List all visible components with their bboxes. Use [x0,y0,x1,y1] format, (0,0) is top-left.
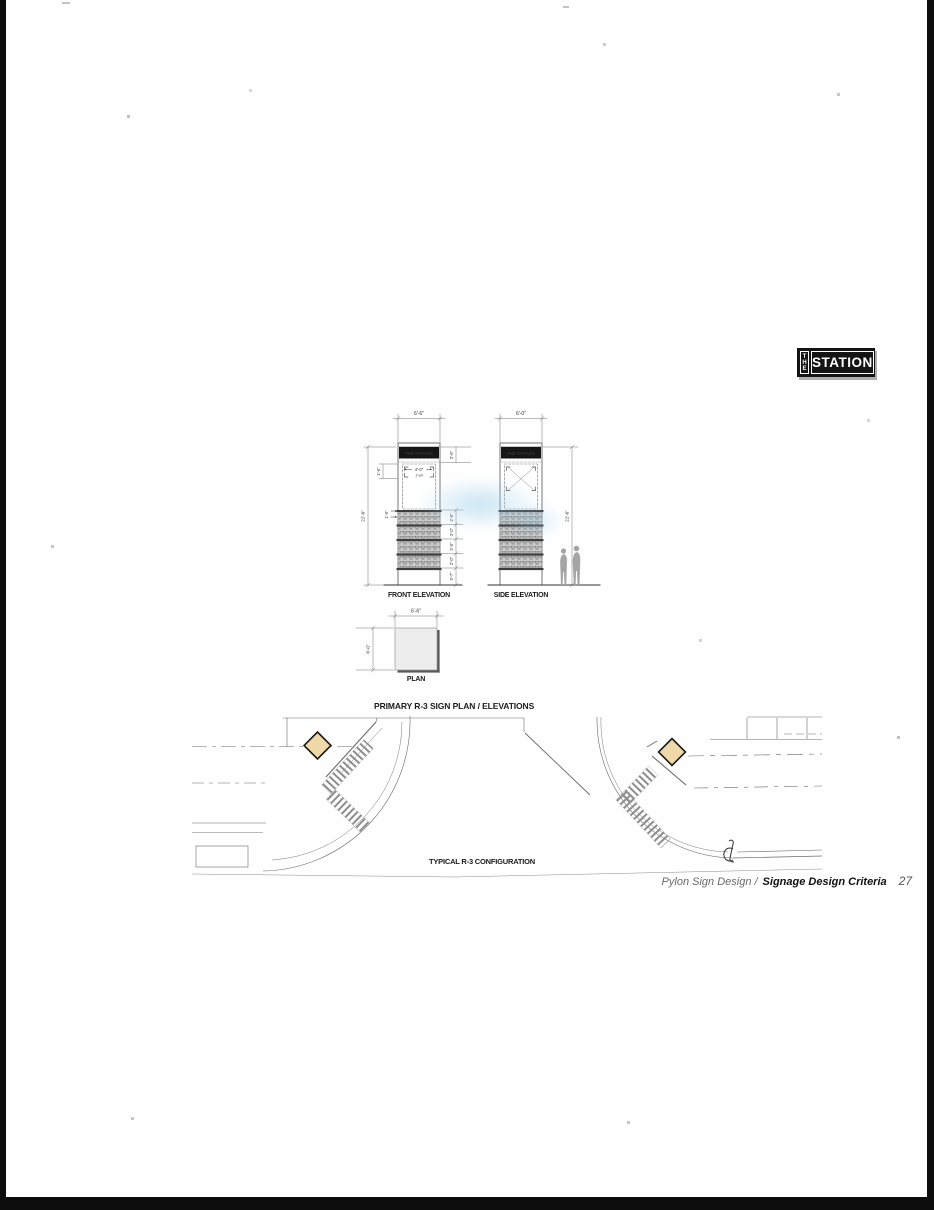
side-tenant-panels [499,510,544,570]
site-plan-label: TYPICAL R-3 CONFIGURATION [429,857,535,866]
front-elevation-label: FRONT ELEVATION [388,592,450,599]
dim-side-height: 22'-6" [565,510,570,522]
front-elevation-drawing: THE STATION 4'-0" -TYP. [361,411,472,599]
elevation-drawings: THE STATION 4'-0" -TYP. [350,400,610,700]
dim-base: 3'-7" [449,572,454,581]
sign-location-marker-right [659,739,686,766]
logo-the-box: THE [800,351,809,374]
dim-bracket-height: 1'-6" [376,467,381,476]
dim-row-offset: 1'-0" [384,510,389,519]
site-plan-drawing: TYPICAL R-3 CONFIGURATION [188,712,828,878]
dim-typ-width: 4'-0" [415,467,424,472]
footer-section: Pylon Sign Design / [662,876,758,888]
logo-station-text: STATION [812,355,873,370]
scan-edge-right [927,0,934,1210]
dim-front-width: 6'-6" [414,411,424,417]
scale-figures [560,546,580,585]
plan-drawing: 6'-6" 6'-0" PLAN [356,609,443,684]
scan-mark [563,6,569,8]
dim-row-2: 2'-0" [449,527,454,536]
footer-document-title: Signage Design Criteria [763,876,887,888]
dim-band-height: 2'-6" [449,450,454,459]
logo-station-box: STATION [811,351,874,374]
primary-sign-title: PRIMARY R-3 SIGN PLAN / ELEVATIONS [374,701,550,711]
side-elevation-drawing: THE STATION [488,411,600,599]
dim-row-3: 2'-0" [449,542,454,551]
side-sign-band-text: THE STATION [507,451,534,456]
plan-label: PLAN [407,676,425,683]
scan-mark [62,2,70,4]
dim-plan-width: 6'-6" [411,609,421,615]
front-sign-band-text: THE STATION [405,451,432,456]
scanned-document-page: THE STATION THE STATION [0,0,934,1210]
dim-front-height: 22'-6" [361,510,366,522]
page-footer: Pylon Sign Design / Signage Design Crite… [620,874,912,888]
front-tenant-panels [397,510,442,570]
centerline-symbol [724,840,734,862]
dim-row-1: 2'-0" [449,513,454,522]
dim-plan-depth: 6'-0" [366,644,371,654]
scan-edge-left [0,0,6,1210]
footer-page-number: 27 [899,874,912,888]
dim-typ-label: -TYP. [414,474,423,478]
station-logo: THE STATION [797,348,875,377]
logo-the-text: THE [801,354,808,372]
sign-location-marker-left [304,732,331,759]
road-lines [192,716,822,877]
side-elevation-label: SIDE ELEVATION [494,592,549,599]
dim-side-width: 6'-0" [516,411,526,417]
dim-row-4: 2'-0" [449,556,454,565]
scan-edge-bottom [0,1197,934,1210]
plan-footprint [395,628,437,670]
